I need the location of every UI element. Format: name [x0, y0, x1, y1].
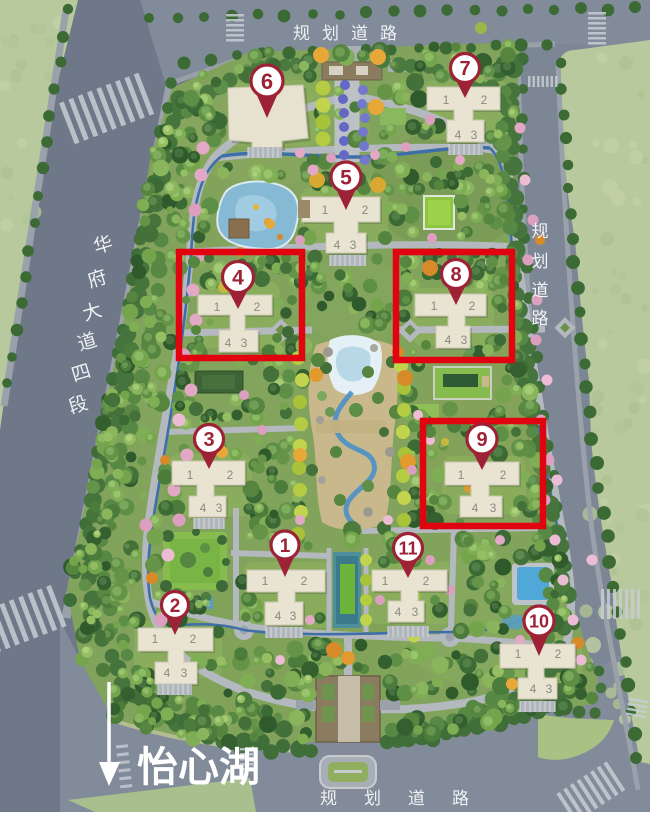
svg-text:道: 道 — [532, 281, 549, 300]
svg-text:4: 4 — [164, 666, 171, 680]
svg-text:3: 3 — [412, 605, 419, 619]
svg-text:9: 9 — [476, 429, 487, 451]
svg-text:1: 1 — [152, 632, 159, 646]
svg-text:怡心湖: 怡心湖 — [137, 744, 260, 790]
svg-text:2: 2 — [423, 574, 430, 588]
svg-text:4: 4 — [395, 605, 402, 619]
svg-text:2: 2 — [500, 468, 507, 482]
svg-text:1: 1 — [214, 300, 221, 314]
svg-text:2: 2 — [555, 647, 562, 661]
svg-text:3: 3 — [216, 501, 223, 515]
svg-text:2: 2 — [190, 632, 197, 646]
svg-text:2: 2 — [170, 596, 181, 617]
svg-text:2: 2 — [469, 299, 476, 313]
svg-text:4: 4 — [472, 501, 479, 515]
svg-text:3: 3 — [241, 336, 248, 350]
svg-text:5: 5 — [340, 167, 352, 190]
svg-text:11: 11 — [398, 538, 417, 558]
svg-text:规: 规 — [532, 222, 549, 241]
svg-text:2: 2 — [254, 300, 261, 314]
svg-text:1: 1 — [458, 468, 465, 482]
svg-text:路: 路 — [532, 309, 549, 328]
svg-text:8: 8 — [450, 264, 461, 286]
svg-text:4: 4 — [334, 238, 341, 252]
svg-text:3: 3 — [181, 666, 188, 680]
svg-text:6: 6 — [261, 69, 273, 94]
svg-text:4: 4 — [225, 336, 232, 350]
svg-text:规划道路: 规划道路 — [320, 789, 496, 808]
svg-text:1: 1 — [382, 574, 389, 588]
svg-text:1: 1 — [443, 93, 450, 107]
svg-text:2: 2 — [301, 574, 308, 588]
svg-text:1: 1 — [280, 536, 291, 557]
svg-text:规划道路: 规划道路 — [293, 24, 409, 43]
svg-text:1: 1 — [262, 574, 269, 588]
svg-text:2: 2 — [362, 203, 369, 217]
svg-text:4: 4 — [445, 333, 452, 347]
svg-text:4: 4 — [232, 267, 244, 290]
svg-text:4: 4 — [200, 501, 207, 515]
svg-text:2: 2 — [227, 468, 234, 482]
svg-text:3: 3 — [290, 609, 297, 623]
svg-text:10: 10 — [529, 611, 549, 631]
svg-text:3: 3 — [471, 128, 478, 142]
svg-text:2: 2 — [481, 93, 488, 107]
svg-text:4: 4 — [530, 682, 537, 696]
svg-text:3: 3 — [546, 682, 553, 696]
svg-text:3: 3 — [490, 501, 497, 515]
svg-text:1: 1 — [431, 299, 438, 313]
svg-text:7: 7 — [459, 58, 470, 80]
svg-text:3: 3 — [350, 238, 357, 252]
svg-text:4: 4 — [275, 609, 282, 623]
svg-text:3: 3 — [461, 333, 468, 347]
svg-text:1: 1 — [187, 468, 194, 482]
svg-text:1: 1 — [515, 647, 522, 661]
svg-text:划: 划 — [532, 252, 549, 271]
svg-text:4: 4 — [455, 128, 462, 142]
svg-text:3: 3 — [203, 429, 214, 451]
svg-text:1: 1 — [322, 203, 329, 217]
